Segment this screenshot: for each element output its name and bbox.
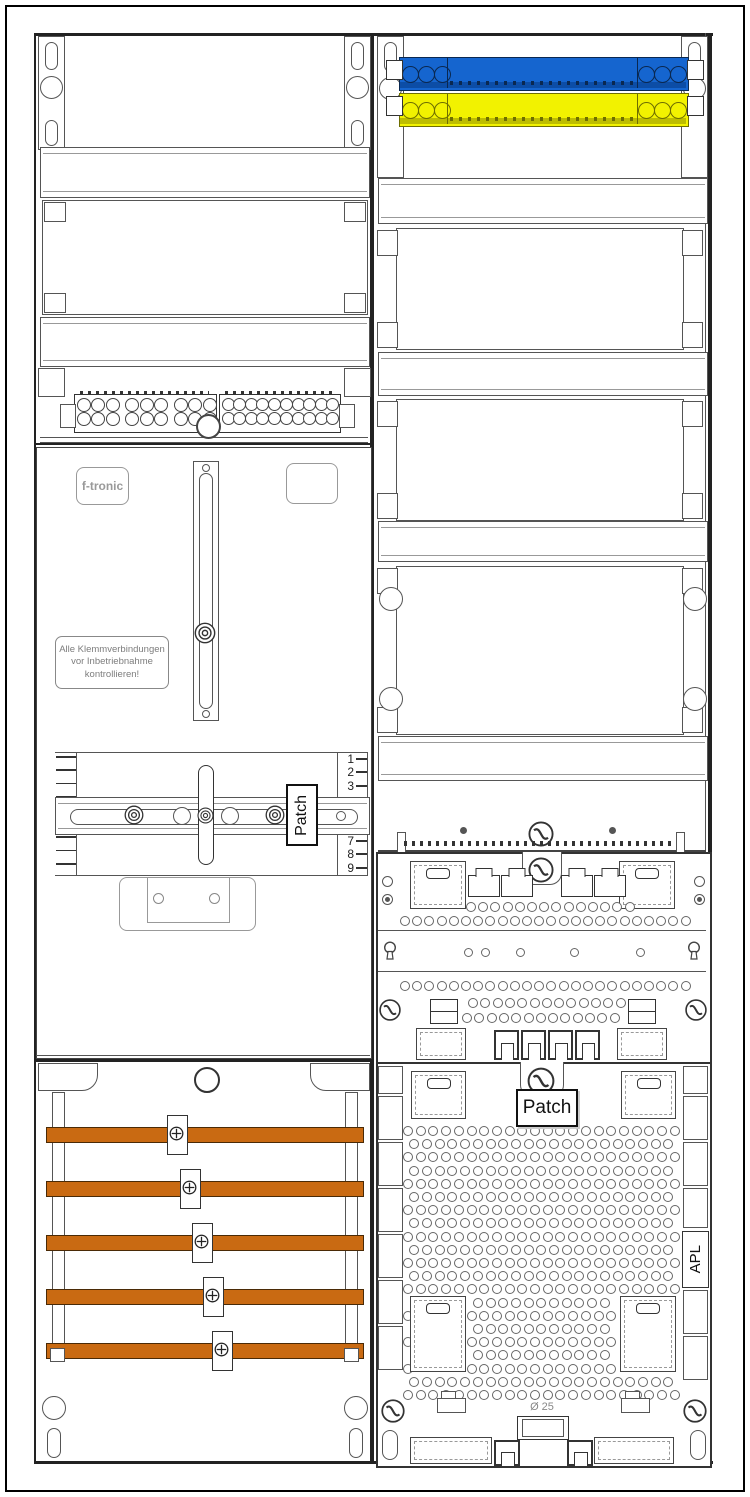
perforation-hole <box>591 998 601 1008</box>
terminal-hole <box>106 398 120 412</box>
perforation-hole <box>492 1390 502 1400</box>
ruler-tick <box>56 836 76 838</box>
perforation-hole <box>613 1192 623 1202</box>
keyhole <box>687 941 701 961</box>
perforation-hole <box>435 1377 445 1387</box>
perforation-hole <box>467 1152 477 1162</box>
perforation-hole <box>619 1258 629 1268</box>
panel-screw <box>382 876 393 887</box>
perforation-hole <box>600 1377 610 1387</box>
perforation-hole <box>479 1179 489 1189</box>
din-cover <box>378 352 708 396</box>
perforation-hole <box>587 1166 597 1176</box>
din-cover <box>40 147 370 198</box>
perforation-hole <box>587 1298 597 1308</box>
perforation-hole <box>613 1271 623 1281</box>
perforation-hole <box>416 1390 426 1400</box>
perforation-hole <box>517 1232 527 1242</box>
perforation-hole <box>670 1232 680 1242</box>
perforation-hole <box>422 1377 432 1387</box>
perforation-hole <box>416 1126 426 1136</box>
side-channel-segment <box>683 1290 708 1334</box>
perforation-hole <box>644 916 654 926</box>
perforation-hole <box>524 1377 534 1387</box>
perforation-hole <box>473 1166 483 1176</box>
rail-slot <box>351 42 364 70</box>
perforation-hole <box>454 1205 464 1215</box>
blank-panel <box>396 566 684 735</box>
terminal-hole <box>125 412 139 426</box>
ruler-number: 3 <box>339 779 354 792</box>
perforation-hole <box>555 1364 565 1374</box>
perforation-hole <box>632 1179 642 1189</box>
perforation-hole <box>583 981 593 991</box>
perforation-hole <box>574 1166 584 1176</box>
perforation-hole <box>454 1126 464 1136</box>
transition-dot <box>609 827 616 834</box>
perforation-hole <box>657 1390 667 1400</box>
perforation-hole <box>467 1311 477 1321</box>
perforation-hole <box>613 1139 623 1149</box>
perforation-hole <box>670 1390 680 1400</box>
perforation-hole <box>594 1152 604 1162</box>
perforation-hole <box>543 1311 553 1321</box>
terminal-hole <box>140 412 154 426</box>
perforation-hole <box>600 1192 610 1202</box>
perforation-hole <box>543 1364 553 1374</box>
corner-cap <box>310 1063 370 1091</box>
perforation-hole <box>505 1337 515 1347</box>
perforation-hole <box>524 1166 534 1176</box>
rail-slot <box>351 120 364 146</box>
perforation-hole <box>437 916 447 926</box>
panel-tab <box>682 493 703 519</box>
perforation-hole <box>435 1166 445 1176</box>
perforation-hole <box>492 1126 502 1136</box>
perforation-hole <box>524 1013 534 1023</box>
perforation-hole <box>594 1205 604 1215</box>
side-channel-segment <box>683 1066 708 1094</box>
ruler-number: 8 <box>339 847 354 860</box>
side-channel-segment <box>378 1326 403 1370</box>
panel-hole <box>683 587 707 611</box>
perforation-hole <box>403 1126 413 1136</box>
perforation-hole <box>524 1218 534 1228</box>
perforation-hole <box>657 1258 667 1268</box>
ruler-tick <box>356 758 367 760</box>
patch-divider <box>378 930 706 931</box>
perforation-hole <box>581 1205 591 1215</box>
perforation-hole <box>515 902 525 912</box>
perforation-hole <box>527 902 537 912</box>
meter-panel-top-divider <box>35 443 370 445</box>
slider-screw <box>124 805 144 825</box>
perforation-hole <box>644 1232 654 1242</box>
perforation-hole <box>594 1258 604 1268</box>
strip-hole <box>636 948 645 957</box>
perforation-hole <box>562 1139 572 1149</box>
quarter-turn-lock <box>378 998 402 1022</box>
terminal-clamp <box>60 404 76 428</box>
corner-hole <box>42 1396 66 1420</box>
perforation-hole <box>638 1377 648 1387</box>
perforation-hole <box>632 1258 642 1268</box>
perforation-hole <box>581 1311 591 1321</box>
perforation-hole <box>581 1258 591 1268</box>
perforation-hole <box>657 1126 667 1136</box>
perforation-hole <box>510 981 520 991</box>
perforation-hole <box>606 1311 616 1321</box>
perforation-hole <box>403 1232 413 1242</box>
neutral-busbar-blue-hole <box>434 66 451 83</box>
pe-busbar-yellow-hole <box>402 102 419 119</box>
perforation-hole <box>449 916 459 926</box>
perforation-hole <box>613 1166 623 1176</box>
perforation-hole <box>530 1390 540 1400</box>
perforation-hole <box>486 1271 496 1281</box>
busbar-end-clamp <box>687 60 704 80</box>
perforation-hole <box>486 1166 496 1176</box>
perforation-hole <box>600 1139 610 1149</box>
perforation-hole <box>422 1166 432 1176</box>
panel-tab <box>682 230 703 256</box>
perforation-hole <box>670 1126 680 1136</box>
perforation-hole <box>524 1192 534 1202</box>
perforation-hole <box>613 1218 623 1228</box>
busbar-clamp-screw <box>182 1180 197 1195</box>
perforation-hole <box>583 916 593 926</box>
perforation-hole <box>594 1337 604 1347</box>
perforation-hole <box>568 1232 578 1242</box>
terminal-hole <box>125 398 139 412</box>
side-channel-segment <box>378 1280 403 1324</box>
ruler-tick <box>56 863 76 865</box>
perforation-hole <box>543 1258 553 1268</box>
brand-badge: f-tronic <box>76 467 129 505</box>
perforation-hole <box>559 981 569 991</box>
terminal-clamp <box>339 404 355 428</box>
perforation-hole <box>543 1390 553 1400</box>
perforation-hole <box>492 1179 502 1189</box>
perforation-hole <box>587 1377 597 1387</box>
perforation-hole <box>681 981 691 991</box>
cable-opening <box>617 1028 667 1060</box>
ruler-tick <box>56 850 76 852</box>
perforation-hole <box>536 1298 546 1308</box>
rail-slot <box>45 42 58 70</box>
neutral-busbar-blue-hole <box>654 66 671 83</box>
perforation-hole <box>524 1139 534 1149</box>
panel-hole <box>683 687 707 711</box>
perforation-hole <box>487 1013 497 1023</box>
perforation-hole <box>594 1364 604 1374</box>
slider-top-edge <box>55 752 368 753</box>
perforation-hole <box>517 1364 527 1374</box>
din-cover <box>40 317 370 367</box>
pe-busbar-yellow-teeth <box>450 117 636 121</box>
perforation-hole <box>493 998 503 1008</box>
perforation-hole <box>681 916 691 926</box>
slider-hole <box>336 811 346 821</box>
perforation-hole <box>460 1166 470 1176</box>
step-bracket <box>437 1398 466 1413</box>
neutral-busbar-blue-hole <box>638 66 655 83</box>
perforation-hole <box>638 1245 648 1255</box>
busbar-end-clamp <box>386 96 403 116</box>
panel-tab <box>44 293 66 313</box>
perforation-hole <box>619 1232 629 1242</box>
ruler-tick <box>56 769 76 771</box>
perforation-hole <box>579 998 589 1008</box>
perforation-hole <box>498 1245 508 1255</box>
perforation-hole <box>505 1126 515 1136</box>
perforation-hole <box>555 1232 565 1242</box>
perforation-hole <box>403 1390 413 1400</box>
center-screw <box>194 622 216 644</box>
din-cover <box>378 178 708 224</box>
compartment-top-hole <box>194 1067 220 1093</box>
perforation-hole <box>499 1013 509 1023</box>
perforation-hole <box>466 902 476 912</box>
perforation-hole <box>536 1013 546 1023</box>
perforation-hole <box>460 1377 470 1387</box>
terminal-hole <box>188 398 202 412</box>
panel-tab <box>377 707 398 733</box>
rail-screw-hole <box>202 710 210 718</box>
sliding-rail-slot <box>199 473 213 709</box>
pe-busbar-yellow-hole <box>638 102 655 119</box>
panel-tab <box>344 202 366 222</box>
slider-hole <box>221 807 239 825</box>
perforation-hole <box>530 1311 540 1321</box>
perforation-hole <box>600 1166 610 1176</box>
neutral-busbar-blue-teeth <box>450 81 636 85</box>
opening-slot <box>637 1078 661 1089</box>
perforation-hole <box>428 1232 438 1242</box>
perforation-hole <box>559 916 569 926</box>
perforation-hole <box>625 1377 635 1387</box>
pe-busbar-yellow-hole <box>654 102 671 119</box>
strip-hole <box>570 948 579 957</box>
perforation-hole <box>600 1271 610 1281</box>
perforation-hole <box>435 1139 445 1149</box>
neutral-busbar-blue-hole <box>670 66 687 83</box>
perforation-hole <box>670 1258 680 1268</box>
perforation-hole <box>486 1350 496 1360</box>
perforation-hole <box>492 1232 502 1242</box>
warning-line-3: kontrollieren! <box>85 669 139 682</box>
perforation-hole <box>625 902 635 912</box>
ruler-tick <box>356 853 367 855</box>
blank-badge <box>286 463 338 504</box>
side-channel-segment <box>378 1188 403 1232</box>
perforation-hole <box>600 1298 610 1308</box>
perforation-hole <box>492 1311 502 1321</box>
perforation-hole <box>619 1179 629 1189</box>
transition-dot <box>460 827 467 834</box>
terminal-hole <box>268 398 281 411</box>
perforation-hole <box>492 1258 502 1268</box>
side-channel-segment <box>378 1066 403 1094</box>
perforation-hole <box>625 1166 635 1176</box>
rail-hole <box>346 76 369 99</box>
perforation-hole <box>663 1166 673 1176</box>
perforation-hole <box>632 1126 642 1136</box>
perforation-hole <box>524 1324 534 1334</box>
perforation-hole <box>616 998 626 1008</box>
opening-slot <box>426 1303 450 1314</box>
perforation-hole <box>568 1311 578 1321</box>
perforation-hole <box>600 1324 610 1334</box>
slider-screw <box>197 807 214 824</box>
strip-hole <box>464 948 473 957</box>
terminal-hole <box>154 412 168 426</box>
pe-busbar-yellow-hole <box>670 102 687 119</box>
perforation-hole <box>657 1232 667 1242</box>
perforation-hole <box>581 1179 591 1189</box>
perforation-hole <box>505 1258 515 1268</box>
terminal-hole <box>91 398 105 412</box>
perforation-hole <box>670 1205 680 1215</box>
corner-slot <box>349 1428 363 1458</box>
perforation-hole <box>460 1245 470 1255</box>
corner-slot <box>382 1430 398 1460</box>
panel-hole <box>379 687 403 711</box>
terminal-hole <box>140 398 154 412</box>
opening-slot <box>426 868 450 879</box>
perforation-hole <box>594 1311 604 1321</box>
cable-clamp <box>521 1030 546 1060</box>
perforation-hole <box>467 1258 477 1268</box>
ruler-tick <box>56 783 76 785</box>
perforation-hole <box>479 1311 489 1321</box>
perforation-hole <box>486 1298 496 1308</box>
perforation-hole <box>620 916 630 926</box>
perforation-hole <box>530 1232 540 1242</box>
perforation-hole <box>581 1232 591 1242</box>
perforation-hole <box>549 1192 559 1202</box>
warning-label: Alle Klemmverbindungen vor Inbetriebnahm… <box>55 636 169 689</box>
perforation-hole <box>632 916 642 926</box>
perforation-hole <box>524 1298 534 1308</box>
side-channel-segment <box>683 1188 708 1228</box>
copper-busbar <box>46 1181 364 1197</box>
perforation-hole <box>454 1179 464 1189</box>
perforation-hole <box>619 1126 629 1136</box>
rail-slot <box>45 120 58 146</box>
perforation-hole <box>571 981 581 991</box>
perforation-hole <box>610 1013 620 1023</box>
terminal-hole <box>106 412 120 426</box>
perforation-hole <box>644 981 654 991</box>
copper-busbar <box>46 1343 364 1359</box>
apl-label-text: APL <box>687 1245 704 1273</box>
corner-hole <box>344 1396 368 1420</box>
neutral-busbar-blue-hole <box>402 66 419 83</box>
busbar-clamp-screw <box>214 1342 229 1357</box>
cable-clamp <box>494 1440 520 1466</box>
perforation-hole <box>416 1179 426 1189</box>
perforation-hole <box>479 1364 489 1374</box>
din-cover <box>378 521 708 562</box>
panel-screw-dot <box>385 897 390 902</box>
cable-gland-inner <box>522 1419 564 1437</box>
perforation-hole <box>594 1390 604 1400</box>
perforation-hole <box>524 1245 534 1255</box>
blank-panel <box>396 399 684 521</box>
ruler-tick <box>356 771 367 773</box>
perforation-hole <box>400 981 410 991</box>
panel-tab <box>682 322 703 348</box>
perforation-hole <box>606 1179 616 1189</box>
slider-bottom-edge <box>55 875 368 876</box>
busbar-end-clamp <box>687 96 704 116</box>
drawing-layer: 123789 <box>0 0 750 1497</box>
terminal-hole <box>154 398 168 412</box>
perforation-hole <box>581 1337 591 1347</box>
panel-hole <box>379 587 403 611</box>
cable-opening <box>410 1437 492 1464</box>
perforation-hole <box>441 1179 451 1189</box>
busbar-clamp-screw <box>169 1126 184 1141</box>
perforation-hole <box>594 1232 604 1242</box>
perforation-hole <box>651 1192 661 1202</box>
perforation-hole <box>549 1324 559 1334</box>
perforation-hole <box>511 1324 521 1334</box>
opening-slot <box>636 1303 660 1314</box>
perforation-hole <box>543 1126 553 1136</box>
perforation-hole <box>522 916 532 926</box>
patch-label-right-text: Patch <box>523 1097 572 1119</box>
perforation-hole <box>486 1324 496 1334</box>
perforation-hole <box>467 1205 477 1215</box>
connector-jack <box>561 875 593 897</box>
perforation-hole <box>522 981 532 991</box>
perforation-hole <box>467 1179 477 1189</box>
cable-clamp <box>575 1030 600 1060</box>
perforation-hole <box>651 1271 661 1281</box>
perforation-hole <box>562 1166 572 1176</box>
perforation-hole <box>454 1232 464 1242</box>
perforation-hole <box>632 981 642 991</box>
perforation-hole <box>524 1271 534 1281</box>
perforation-hole <box>573 1013 583 1023</box>
perforation-hole <box>632 1205 642 1215</box>
perforation-hole <box>651 1245 661 1255</box>
perforation-hole <box>530 1364 540 1374</box>
perforation-hole <box>530 1258 540 1268</box>
pe-busbar-yellow-hole <box>418 102 435 119</box>
rail-foot <box>50 1348 65 1362</box>
transition-post <box>676 832 685 854</box>
blank-panel <box>42 200 368 315</box>
perforation-hole <box>581 1364 591 1374</box>
warning-line-1: Alle Klemmverbindungen <box>59 644 165 657</box>
opening-slot <box>635 868 659 879</box>
blank-panel <box>396 228 684 350</box>
perforation-hole <box>542 998 552 1008</box>
perforation-hole <box>505 1311 515 1321</box>
perforation-hole <box>462 1013 472 1023</box>
panel-tab <box>44 202 66 222</box>
perforation-hole <box>467 1390 477 1400</box>
meter-cabinet-technical-drawing: 123789 f-tronic Alle Klemmverbindungen v… <box>0 0 750 1497</box>
perforation-hole <box>409 1166 419 1176</box>
transition-teeth <box>404 841 676 846</box>
perforation-hole <box>435 1271 445 1281</box>
copper-busbar <box>46 1127 364 1143</box>
perforation-hole <box>588 902 598 912</box>
